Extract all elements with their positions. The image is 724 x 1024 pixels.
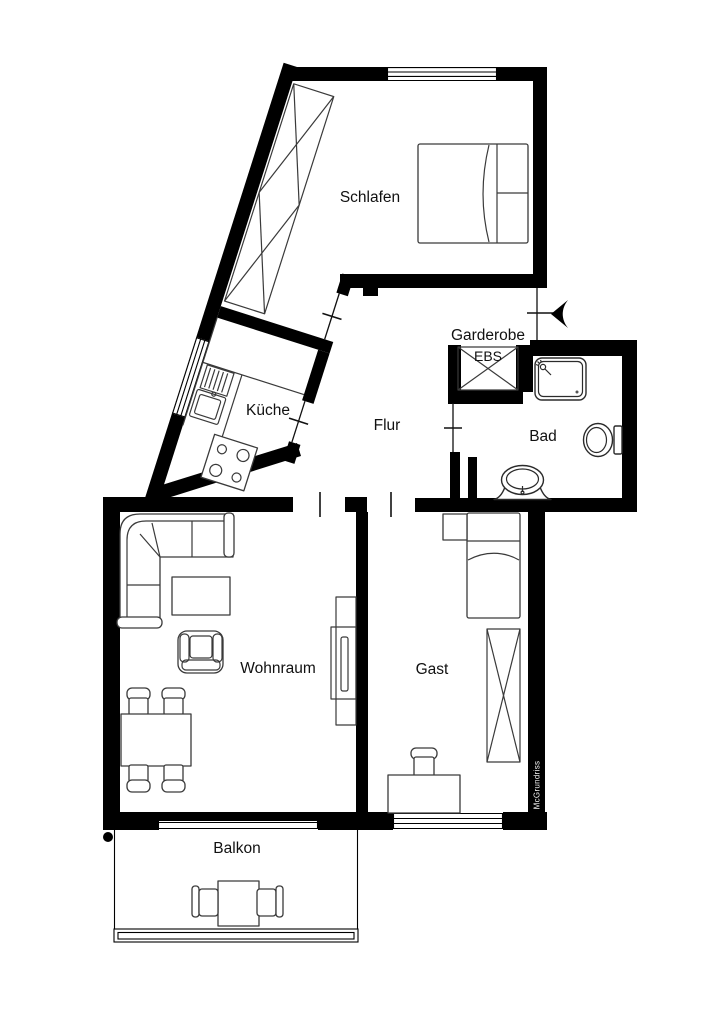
wall-wohnraum-gast-separator bbox=[356, 512, 368, 822]
wall-ebs-bottom bbox=[448, 390, 523, 404]
wall-flur-bottom-mid bbox=[345, 497, 367, 512]
balcony-chair bbox=[192, 886, 218, 917]
guest-bed bbox=[467, 513, 520, 618]
wall-schlafen-bottom-nub bbox=[363, 288, 378, 296]
wall-kueche-flur-a bbox=[302, 350, 330, 404]
balcony-door-band bbox=[158, 821, 318, 829]
wall-flur-bottom-left bbox=[103, 497, 293, 512]
room-label-gast: Gast bbox=[416, 661, 449, 678]
room-label-kueche: Küche bbox=[246, 402, 290, 419]
balcony-railing bbox=[114, 929, 358, 942]
shower-drain bbox=[576, 391, 579, 394]
nightstand bbox=[443, 514, 467, 540]
floorplan-page: Schlafen Küche Flur Garderobe EBS Bad Wo… bbox=[0, 0, 724, 1024]
balcony-table bbox=[218, 881, 259, 926]
guest-wardrobe bbox=[487, 629, 520, 762]
wall-bottom-seg1 bbox=[103, 812, 159, 830]
wall-schlafen-bottom bbox=[340, 274, 547, 288]
shower bbox=[535, 358, 586, 400]
wall-bottom-seg3 bbox=[503, 812, 547, 830]
room-label-schlafen: Schlafen bbox=[340, 189, 400, 206]
dining-set bbox=[121, 688, 191, 792]
wall-balcony-door-lintel bbox=[158, 812, 318, 821]
corner-dot-icon bbox=[103, 832, 113, 842]
wall-wohnraum-left bbox=[103, 497, 120, 830]
dining-chair bbox=[127, 688, 150, 715]
watermark: McGrundriss bbox=[533, 761, 542, 810]
wall-schlafen-right bbox=[533, 67, 547, 288]
double-bed bbox=[418, 144, 528, 243]
armchair bbox=[178, 631, 223, 673]
dining-chair bbox=[162, 688, 185, 715]
room-label-balkon: Balkon bbox=[213, 840, 260, 857]
desk-and-chair bbox=[388, 748, 460, 813]
dining-chair bbox=[162, 765, 185, 792]
wall-schlafen-kueche-separator bbox=[217, 306, 333, 353]
wall-bad-right bbox=[622, 340, 637, 512]
wall-bad-top bbox=[530, 340, 637, 356]
toilet bbox=[584, 424, 623, 457]
bad-door bbox=[444, 403, 462, 452]
room-label-garderobe: Garderobe bbox=[451, 327, 525, 344]
coffee-table bbox=[172, 577, 230, 615]
room-label-wohnraum: Wohnraum bbox=[240, 660, 316, 677]
schlafen-door bbox=[315, 290, 349, 342]
dining-table bbox=[121, 714, 191, 766]
dining-chair bbox=[127, 765, 150, 792]
room-label-ebs: EBS bbox=[474, 348, 502, 364]
angled-wing bbox=[143, 63, 410, 545]
desk bbox=[388, 775, 460, 813]
entrance-arrow-icon bbox=[551, 300, 568, 328]
wall-bad-pier-b bbox=[468, 457, 477, 512]
balcony-chair bbox=[257, 886, 283, 917]
bathroom-sink bbox=[494, 466, 551, 500]
room-label-bad: Bad bbox=[529, 428, 557, 445]
wall-schlafen-door-jamb bbox=[336, 274, 354, 297]
wall-kueche-flur-b bbox=[283, 441, 301, 464]
wall-bad-pier-a bbox=[450, 452, 460, 512]
wall-bottom-seg2 bbox=[318, 812, 393, 830]
tv-sideboard bbox=[331, 597, 356, 725]
schlafen-window bbox=[387, 67, 497, 81]
gast-window bbox=[393, 812, 503, 830]
room-label-flur: Flur bbox=[374, 417, 401, 434]
floorplan-canvas: Schlafen Küche Flur Garderobe EBS Bad Wo… bbox=[0, 0, 724, 1024]
walls-angled bbox=[143, 63, 409, 544]
